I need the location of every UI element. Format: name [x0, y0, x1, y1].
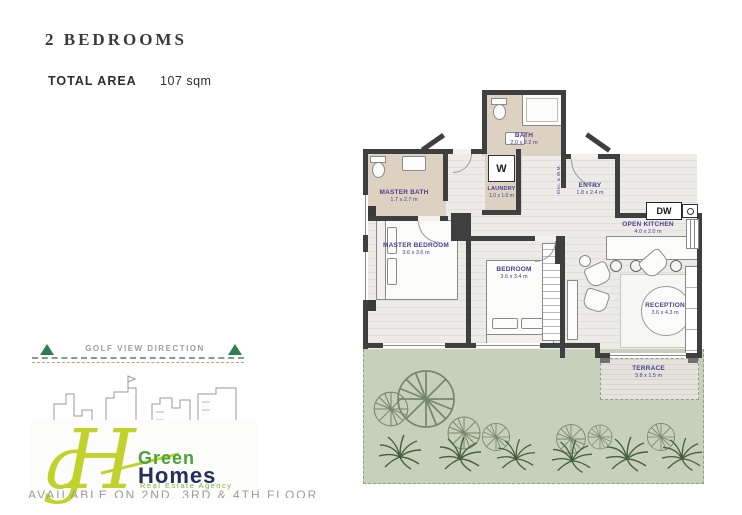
window [383, 343, 445, 348]
bedroom-name: BEDROOM [470, 266, 558, 274]
open-kitchen-dims: 4.0 x 2.0 m [598, 229, 698, 236]
room-label-entry: ENTRY 1.8 x 2.4 m [562, 182, 618, 198]
entry-dims: 1.8 x 2.4 m [562, 190, 618, 197]
room-label-master-bath: MASTER BATH 1.7 x 2.7 m [363, 189, 445, 205]
room-label-bedroom: BEDROOM 3.6 x 3.4 m [470, 266, 558, 282]
wall [482, 90, 566, 95]
bath-dims: 2.0 x 2.2 m [482, 140, 566, 147]
wall [516, 149, 521, 215]
wall [466, 236, 471, 348]
room-label-open-kitchen: OPEN KITCHEN 4.0 x 2.0 m [598, 221, 698, 237]
room-label-terrace: TERRACE 3.8 x 1.5 m [600, 365, 697, 381]
toilet-icon [493, 104, 506, 120]
open-kitchen-name: OPEN KITCHEN [598, 221, 698, 229]
window [476, 343, 540, 348]
toilet-icon [372, 162, 385, 178]
master-bed-pillow [387, 258, 397, 285]
total-area-value: 107 sqm [160, 74, 211, 88]
page-title: 2 BEDROOMS [45, 30, 187, 50]
footer-caption-text: AVAILABLE ON 2ND, 3RD & 4TH FLOOR [28, 488, 338, 498]
room-label-master-bedroom: MASTER BEDROOM 3.6 x 3.6 m [366, 242, 466, 258]
reception-name: RECEPTION [641, 302, 689, 310]
terrace-name: TERRACE [600, 365, 697, 373]
bed-pillow [492, 318, 518, 329]
wall-cap [688, 358, 698, 363]
golf-view-label: GOLF VIEW DIRECTION [70, 344, 220, 353]
stool [670, 260, 682, 272]
stool [610, 260, 622, 272]
room-label-laundry: LAUNDRY 1.0 x 1.0 m [479, 186, 524, 200]
side-table [579, 255, 591, 267]
wall-column [555, 236, 565, 264]
dishwasher: DW [646, 202, 682, 220]
laundry-dims: 1.0 x 1.0 m [479, 193, 524, 200]
master-bath-name: MASTER BATH [363, 189, 445, 197]
window [363, 252, 368, 300]
golf-direction-arrow-icon [40, 344, 54, 355]
bedroom-dims: 3.6 x 3.4 m [470, 274, 558, 281]
wall-cap [600, 358, 610, 363]
total-area-label: TOTAL AREA [48, 74, 137, 88]
washing-machine: W [488, 155, 515, 182]
floor-plan-page: { "header": { "title": "2 BEDROOMS", "ar… [0, 0, 742, 515]
sink-icon [402, 156, 426, 171]
floor-plan: DW W [358, 90, 710, 492]
master-bed-headboard [376, 220, 386, 300]
master-bath-dims: 1.7 x 2.7 m [363, 197, 445, 204]
footer-caption-clipped: AVAILABLE ON 2ND, 3RD & 4TH FLOOR [28, 488, 338, 498]
room-label-bath: BATH 2.0 x 2.2 m [482, 132, 566, 148]
sliding-glass-door [610, 353, 686, 358]
terrace-dims: 3.8 x 1.5 m [600, 373, 697, 380]
golf-boundary-dashed-line-2 [32, 362, 244, 363]
reception-dims: 3.6 x 4.3 m [641, 310, 689, 317]
entry-name: ENTRY [562, 182, 618, 190]
golf-boundary-dashed-line [32, 357, 244, 359]
sink-unit [682, 204, 698, 218]
master-bedroom-dims: 3.6 x 3.6 m [366, 250, 466, 257]
meters-label: Elec. & W.M. [556, 158, 561, 194]
wall [482, 210, 521, 215]
bath-name: BATH [482, 132, 566, 140]
shower [522, 94, 562, 126]
master-bedroom-name: MASTER BEDROOM [366, 242, 466, 250]
golf-direction-arrow-icon [228, 344, 242, 355]
media-console [567, 280, 578, 340]
room-label-reception: RECEPTION 3.6 x 4.3 m [641, 302, 689, 318]
laundry-name: LAUNDRY [479, 186, 524, 193]
wall-chamfer [585, 132, 611, 152]
